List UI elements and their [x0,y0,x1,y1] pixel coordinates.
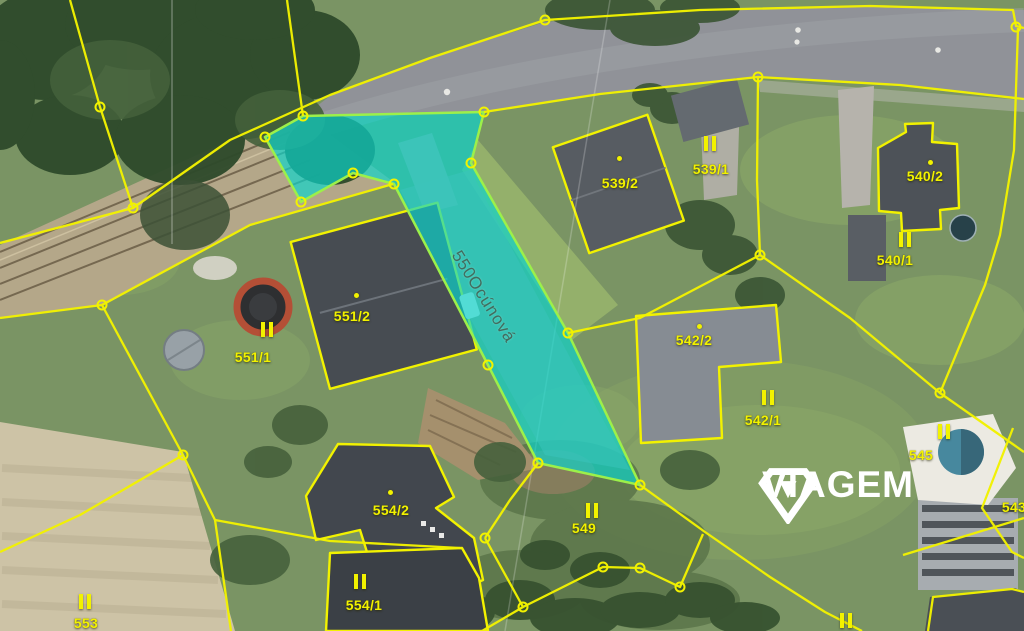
parcel-label-539-1: 539/1 [693,161,730,177]
parcel-tick-icon [937,424,950,439]
parcel-point-icon [928,160,933,165]
viagem-gem-icon [756,466,820,524]
parcel-label-543: 543 [1002,499,1024,515]
pool-terrace [903,414,1018,590]
building-roof-554-1 [326,548,488,631]
parcel-label-554-1: 554/1 [346,597,383,613]
parcel-label-540-1: 540/1 [877,252,914,268]
parcel-point-icon [617,156,622,161]
parcel-tick-icon [585,503,598,518]
hot-tub [950,215,976,241]
parcel-label-551-1: 551/1 [235,349,272,365]
garage-540 [848,215,886,281]
stones [193,256,237,280]
parcel-point-icon [388,490,393,495]
parcel-label-542-1: 542/1 [745,412,782,428]
parcel-tick-icon [78,594,91,609]
parcel-tick-icon [761,390,774,405]
parcel-label-554-2: 554/2 [373,502,410,518]
parcel-tick-icon [260,322,273,337]
parcel-label-545: 545 [909,447,933,463]
parcel-tick-icon [839,613,852,628]
aerial-imagery [0,0,1024,631]
parcel-label-549: 549 [572,520,596,536]
parcel-point-icon [697,324,702,329]
watermark: VIAGEM [756,466,920,503]
parcel-label-539-2: 539/2 [602,175,639,191]
parcel-label-540-2: 540/2 [907,168,944,184]
parcel-label-553: 553 [74,615,98,631]
parcel-label-551-2: 551/2 [334,308,371,324]
parcel-tick-icon [898,232,911,247]
map-stage: 539/2 539/1 540/2 540/1 551/2 551/1 542/… [0,0,1024,631]
parcel-label-542-2: 542/2 [676,332,713,348]
parcel-tick-icon [353,574,366,589]
parcel-tick-icon [703,136,716,151]
parcel-point-icon [354,293,359,298]
